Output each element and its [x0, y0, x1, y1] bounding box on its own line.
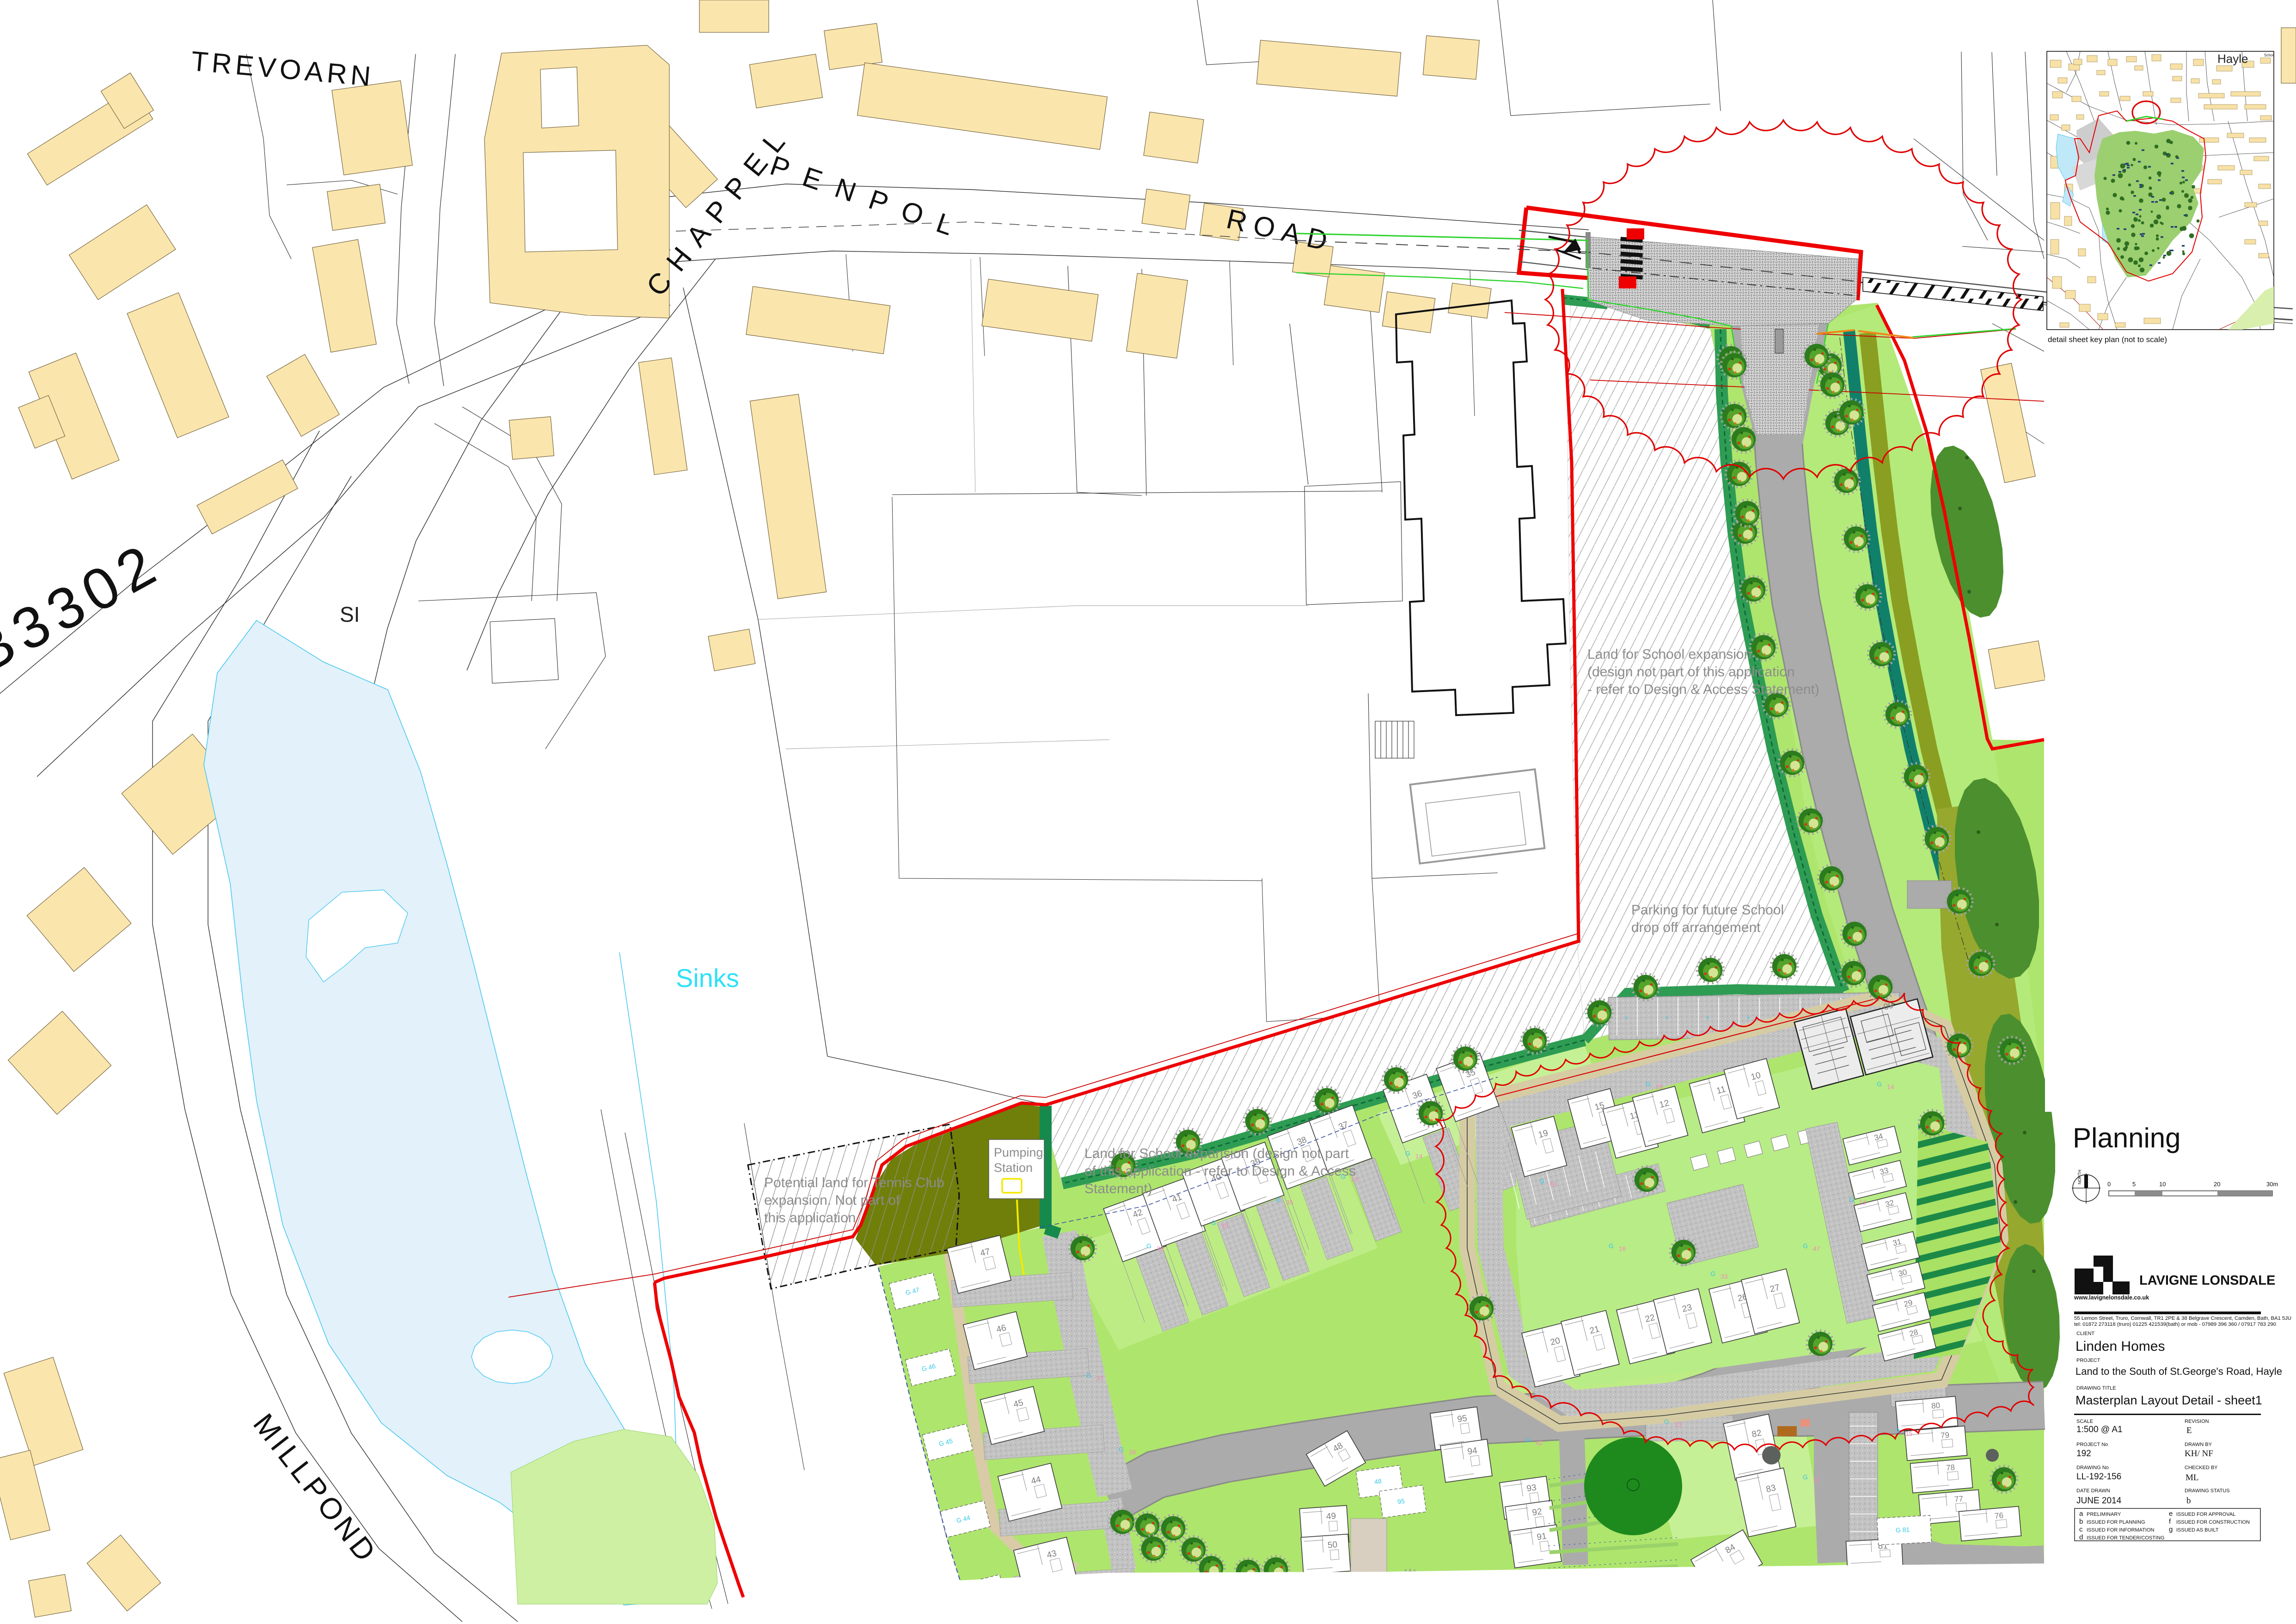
svg-text:78: 78: [1946, 1463, 1955, 1472]
svg-text:12: 12: [1813, 1476, 1820, 1483]
svg-text:14: 14: [1415, 1152, 1423, 1160]
svg-text:g: g: [2169, 1526, 2173, 1533]
svg-text:G: G: [1119, 1446, 1124, 1453]
svg-text:G: G: [1609, 1242, 1614, 1250]
svg-text:c: c: [2079, 1526, 2083, 1533]
svg-text:Pumping: Pumping: [994, 1146, 1043, 1159]
svg-text:G: G: [1405, 1150, 1410, 1157]
svg-text:Sinks: Sinks: [676, 963, 739, 993]
svg-text:ISSUED FOR CONSTRUCTION: ISSUED FOR CONSTRUCTION: [2176, 1520, 2250, 1525]
svg-text:30m: 30m: [2266, 1181, 2278, 1188]
svg-text:expansion. Not part of: expansion. Not part of: [764, 1193, 900, 1208]
svg-text:G: G: [1276, 1196, 1281, 1203]
svg-text:47: 47: [1813, 1245, 1820, 1252]
svg-text:1:500 @ A1: 1:500 @ A1: [2076, 1425, 2123, 1434]
svg-text:G: G: [1341, 1173, 1346, 1180]
svg-text:b: b: [2186, 1496, 2191, 1506]
svg-text:Land for School expansion (des: Land for School expansion (design not pa…: [1084, 1146, 1349, 1161]
svg-text:Masterplan Layout Detail - she: Masterplan Layout Detail - sheet1: [2076, 1393, 2262, 1407]
svg-text:Land to the South of St.George: Land to the South of St.George's Road, H…: [2076, 1366, 2282, 1377]
svg-text:76: 76: [1994, 1511, 2004, 1520]
svg-text:PRELIMINARY: PRELIMINARY: [2087, 1512, 2121, 1517]
svg-text:G: G: [1146, 1242, 1151, 1250]
svg-text:detail sheet key plan (not to: detail sheet key plan (not to scale): [2048, 335, 2167, 344]
svg-text:G: G: [1664, 1418, 1669, 1425]
svg-text:192: 192: [2076, 1449, 2091, 1459]
svg-text:23: 23: [1674, 1421, 1682, 1428]
svg-text:(design not part of this appli: (design not part of this application: [1587, 664, 1795, 680]
svg-text:this application: this application: [764, 1210, 856, 1226]
svg-text:91: 91: [1536, 1532, 1547, 1543]
svg-text:G: G: [1710, 1270, 1715, 1277]
svg-text:ISSUED FOR PLANNING: ISSUED FOR PLANNING: [2087, 1520, 2145, 1525]
svg-text:DRAWING STATUS: DRAWING STATUS: [2185, 1488, 2230, 1494]
svg-text:v: v: [1625, 1014, 1628, 1021]
svg-text:ISSUED FOR APPROVAL: ISSUED FOR APPROVAL: [2176, 1512, 2235, 1517]
svg-text:v: v: [1706, 1014, 1709, 1021]
svg-text:REVISION: REVISION: [2185, 1419, 2209, 1424]
svg-text:ISSUED FOR TENDER/COSTING: ISSUED FOR TENDER/COSTING: [2087, 1535, 2164, 1541]
svg-text:G: G: [1646, 1080, 1651, 1088]
svg-text:36: 36: [1129, 1448, 1136, 1456]
svg-text:55 Lemon Street, Truro, Cor: 55 Lemon Street, Truro, Cornwall, TR1 2P…: [2074, 1316, 2291, 1321]
svg-text:25: 25: [1656, 1083, 1663, 1091]
svg-text:SI: SI: [340, 602, 360, 626]
svg-text:CLIENT: CLIENT: [2076, 1331, 2094, 1336]
svg-text:82: 82: [1751, 1428, 1763, 1440]
svg-text:83: 83: [1765, 1483, 1777, 1495]
svg-text:v: v: [1747, 1014, 1750, 1021]
svg-text:14: 14: [1887, 1083, 1894, 1091]
svg-text:35: 35: [1286, 1199, 1293, 1206]
svg-text:LAVIGNE LONSDALE: LAVIGNE LONSDALE: [2139, 1273, 2275, 1288]
svg-text:E: E: [2186, 1426, 2192, 1435]
svg-text:16: 16: [1619, 1245, 1626, 1252]
svg-text:Planning: Planning: [2073, 1122, 2181, 1153]
svg-text:13: 13: [1351, 1176, 1358, 1183]
svg-text:CHECKED BY: CHECKED BY: [2185, 1465, 2218, 1471]
svg-text:a: a: [2079, 1510, 2083, 1518]
svg-text:Hayle: Hayle: [2217, 52, 2248, 66]
svg-text:DRAWING TITLE: DRAWING TITLE: [2076, 1385, 2116, 1391]
svg-text:95: 95: [1457, 1414, 1468, 1425]
svg-text:44: 44: [1549, 1180, 1557, 1188]
svg-text:80: 80: [1931, 1401, 1941, 1410]
svg-text:DATE DRAWN: DATE DRAWN: [2076, 1488, 2110, 1494]
svg-text:ML: ML: [2186, 1473, 2199, 1483]
svg-text:15: 15: [1905, 1430, 1913, 1437]
svg-text:KH/ NF: KH/ NF: [2185, 1449, 2213, 1459]
svg-text:G: G: [1525, 1436, 1531, 1444]
svg-text:G: G: [1803, 1242, 1808, 1250]
svg-text:SCALE: SCALE: [2076, 1419, 2093, 1424]
svg-text:13: 13: [1859, 1199, 1867, 1206]
svg-text:Land for School expansion: Land for School expansion: [1587, 647, 1751, 662]
svg-text:Parking for future School: Parking for future School: [1631, 902, 1784, 918]
svg-text:Schoo: Schoo: [2264, 53, 2275, 57]
svg-text:42: 42: [1536, 1439, 1543, 1446]
svg-text:77: 77: [1954, 1494, 1964, 1504]
svg-text:- refer to Design & Access Sta: - refer to Design & Access Statement): [1587, 682, 1819, 697]
svg-text:e: e: [2169, 1510, 2173, 1518]
svg-text:48: 48: [1374, 1477, 1382, 1486]
svg-text:0: 0: [2107, 1181, 2111, 1188]
svg-text:10: 10: [2159, 1181, 2166, 1188]
svg-text:G: G: [1211, 1219, 1216, 1226]
svg-text:PROJECT: PROJECT: [2076, 1358, 2100, 1363]
svg-text:93: 93: [1526, 1483, 1537, 1494]
svg-text:ISSUED AS BUILT: ISSUED AS BUILT: [2176, 1527, 2219, 1533]
svg-text:79: 79: [1940, 1430, 1950, 1440]
svg-text:50: 50: [1327, 1540, 1338, 1550]
svg-text:b: b: [2079, 1518, 2083, 1526]
svg-text:G: G: [1539, 1177, 1544, 1185]
svg-text:ISSUED FOR INFORMATION: ISSUED FOR INFORMATION: [2087, 1527, 2155, 1533]
svg-text:G: G: [1895, 1427, 1900, 1434]
svg-text:Statement): Statement): [1084, 1181, 1152, 1196]
svg-text:Potential land for Tennis Clu: Potential land for Tennis Club: [764, 1175, 944, 1190]
svg-text:G 81: G 81: [1895, 1526, 1910, 1534]
svg-text:tel: 01872 273118 (truro): tel: 01872 273118 (truro) 01225 421539(b…: [2074, 1322, 2276, 1327]
svg-text:5: 5: [2132, 1181, 2136, 1188]
svg-text:33: 33: [1720, 1273, 1728, 1280]
svg-text:G: G: [1803, 1473, 1808, 1481]
svg-text:92: 92: [1531, 1507, 1543, 1518]
svg-text:95: 95: [1397, 1497, 1405, 1506]
svg-text:d: d: [2079, 1533, 2083, 1541]
svg-text:30: 30: [1157, 1245, 1164, 1252]
svg-text:of this application - refer to: of this application - refer to Design & …: [1084, 1164, 1356, 1179]
svg-text:G: G: [1086, 1372, 1091, 1379]
svg-text:drop off arrangement: drop off arrangement: [1631, 920, 1761, 935]
svg-text:www.lavignelonsdale.co.uk: www.lavignelonsdale.co.uk: [2074, 1294, 2149, 1301]
svg-text:DRAWING No: DRAWING No: [2076, 1465, 2109, 1471]
svg-text:19: 19: [1221, 1222, 1229, 1229]
svg-text:20: 20: [2214, 1181, 2220, 1188]
svg-text:LL-192-156: LL-192-156: [2076, 1472, 2121, 1482]
svg-text:94: 94: [1467, 1446, 1478, 1457]
svg-text:NORTH: NORTH: [2077, 1170, 2082, 1184]
svg-text:JUNE 2014: JUNE 2014: [2076, 1496, 2122, 1506]
svg-text:37: 37: [1096, 1374, 1104, 1382]
svg-text:PROJECT No: PROJECT No: [2076, 1442, 2108, 1447]
svg-text:49: 49: [1326, 1511, 1336, 1521]
svg-text:G: G: [1877, 1080, 1882, 1088]
svg-text:Linden Homes: Linden Homes: [2076, 1339, 2165, 1354]
svg-text:DRAWN BY: DRAWN BY: [2185, 1442, 2212, 1447]
svg-text:G: G: [1849, 1196, 1854, 1203]
svg-text:Station: Station: [994, 1161, 1033, 1175]
svg-text:v: v: [1665, 1014, 1668, 1021]
